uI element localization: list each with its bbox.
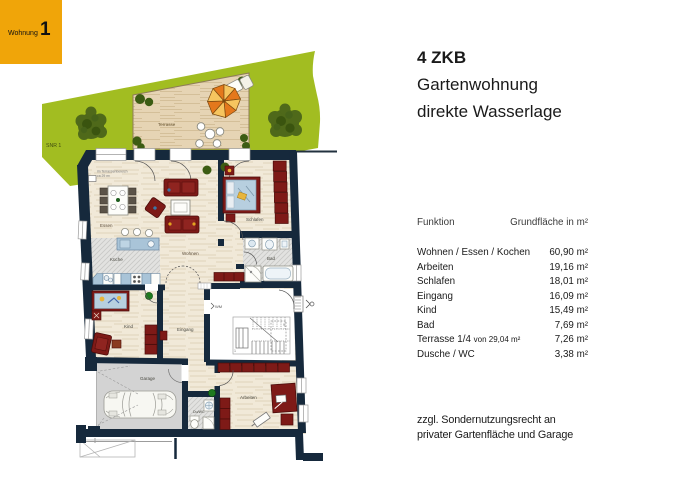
svg-text:Garage: Garage — [140, 376, 156, 381]
svg-text:Kind: Kind — [124, 324, 134, 329]
svg-text:1: 1 — [234, 349, 236, 353]
svg-text:Terrasse: Terrasse — [158, 122, 176, 127]
svg-text:Arbeiten: Arbeiten — [240, 395, 257, 400]
svg-text:Essen: Essen — [100, 223, 113, 228]
svg-text:Eingang: Eingang — [177, 327, 194, 332]
svg-text:Wohnen: Wohnen — [182, 251, 199, 256]
svg-text:Schlafen: Schlafen — [246, 217, 264, 222]
svg-text:Du/WC: Du/WC — [193, 410, 205, 414]
svg-text:9: 9 — [283, 323, 285, 327]
svg-text:WM: WM — [215, 304, 222, 309]
svg-text:SNR 1: SNR 1 — [46, 143, 61, 149]
svg-text:im Terrassenbereich: im Terrassenbereich — [97, 170, 128, 174]
svg-text:Küche: Küche — [110, 257, 123, 262]
svg-text:ca 29 m²: ca 29 m² — [97, 174, 111, 178]
svg-text:Bad: Bad — [267, 256, 276, 261]
